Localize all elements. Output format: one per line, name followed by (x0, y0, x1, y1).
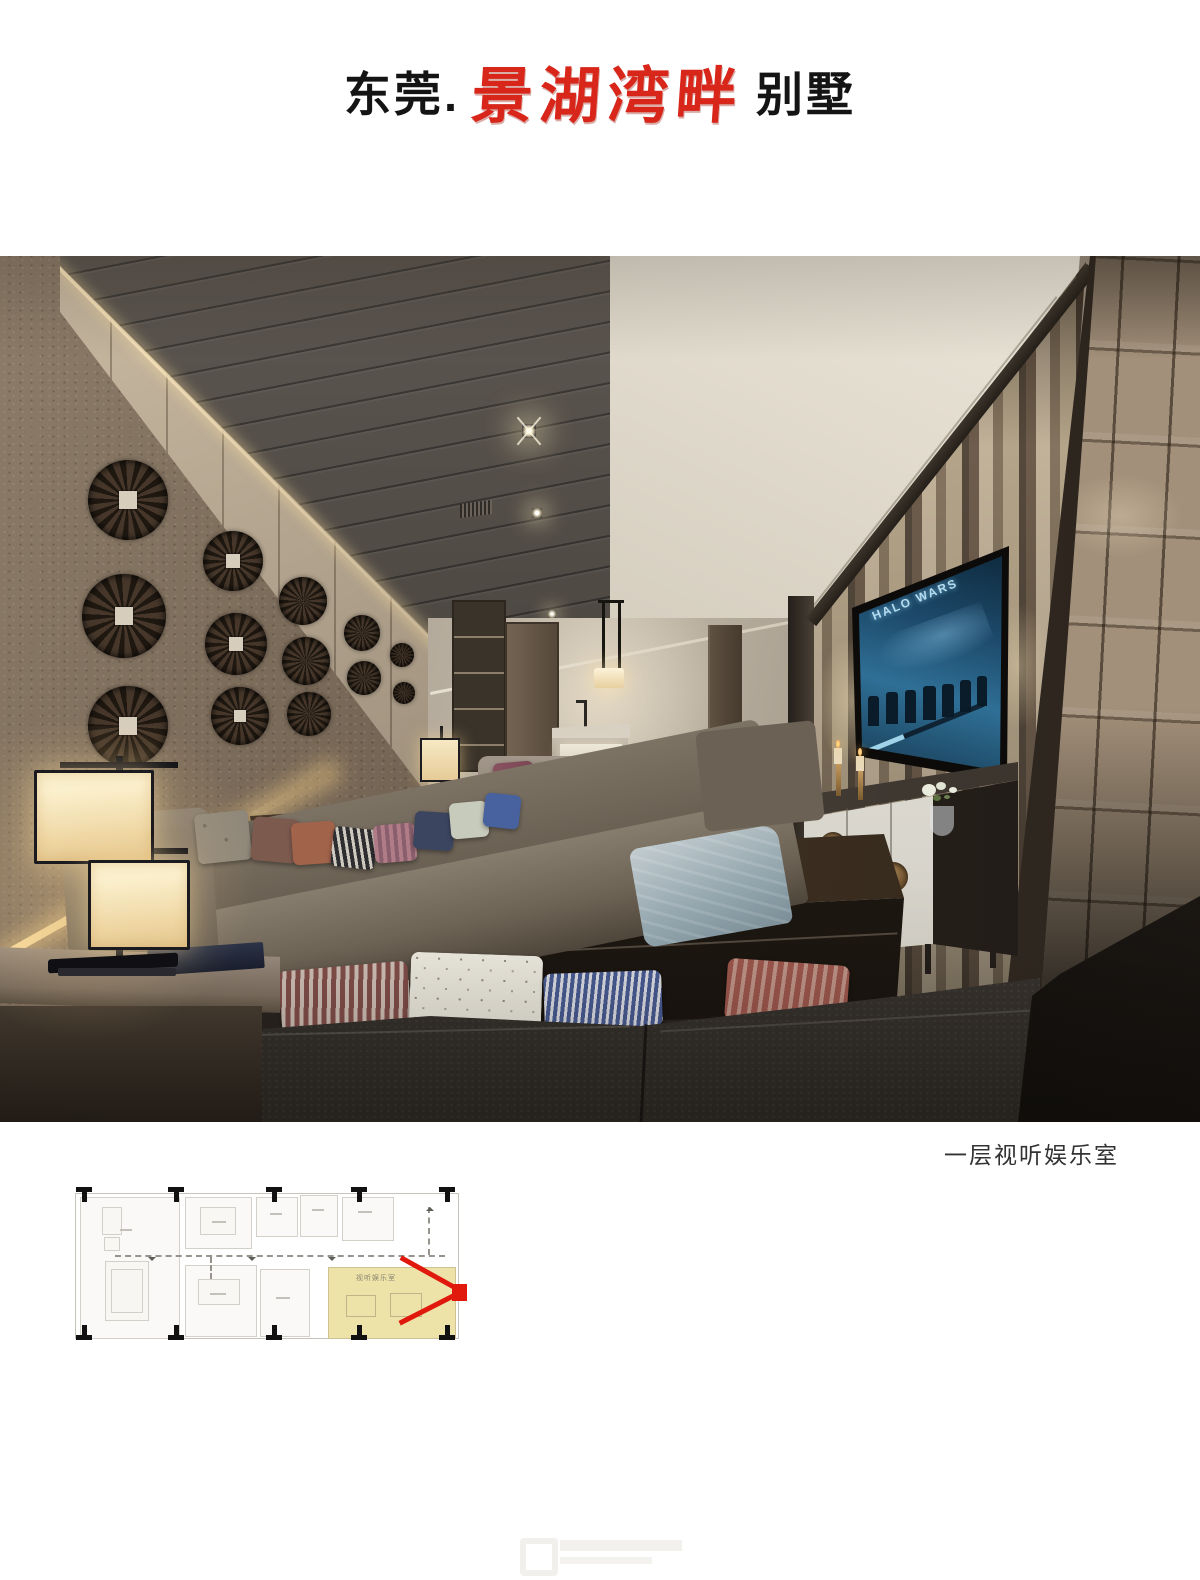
plan-text-smudge (120, 1229, 132, 1231)
wall-medallion (347, 661, 381, 695)
plan-route-arrow (248, 1257, 256, 1265)
wall-medallion (287, 692, 331, 736)
alcove-shelf-unit (452, 600, 506, 772)
plan-grid-marker (266, 1325, 282, 1340)
plan-grid-marker (76, 1187, 92, 1202)
plan-furniture (104, 1237, 120, 1251)
medallion-center (226, 554, 239, 567)
alcove-door (505, 622, 559, 764)
pendant-bar (598, 600, 624, 603)
plan-room (256, 1197, 298, 1237)
cabinet-leg (990, 938, 996, 968)
candle (856, 756, 864, 771)
plan-route-arrow (328, 1257, 336, 1265)
plan-grid-marker (76, 1325, 92, 1340)
plan-route-dashed (115, 1255, 445, 1257)
ceiling-spotlight (548, 610, 556, 618)
wall-medallion (390, 643, 414, 667)
floor-lamp-base-plate (58, 968, 176, 976)
plan-grid-marker (168, 1187, 184, 1202)
plan-text-smudge (270, 1213, 282, 1215)
plan-text-smudge (276, 1297, 290, 1299)
table-lamp-shade (420, 738, 460, 782)
plan-furniture (111, 1269, 143, 1313)
wall-medallion (203, 531, 263, 591)
flower-vase (930, 806, 954, 836)
sofa-pillow (330, 826, 378, 870)
medallion-center (115, 607, 133, 625)
wall-medallion (205, 613, 267, 675)
title-city: 东莞. (344, 68, 460, 121)
plan-route-arrow (148, 1257, 156, 1265)
plan-grid-marker (351, 1325, 367, 1340)
faucet (584, 700, 587, 728)
pendant-lamp-shade (594, 668, 624, 688)
floor-lamp-shade (34, 770, 154, 864)
plan-grid-marker (439, 1325, 455, 1340)
page-title: 东莞.景湖湾畔别墅 (0, 46, 1200, 135)
watermark-logo (520, 1538, 558, 1576)
plan-route-dashed (428, 1207, 430, 1255)
candle-flame (858, 748, 862, 756)
title-suffix: 别墅 (756, 68, 856, 121)
faucet-spout (576, 700, 587, 703)
game-soldier-silhouette (923, 686, 936, 720)
medallion-center (234, 710, 247, 723)
tv-loading-progress (864, 734, 905, 754)
watermark (520, 1536, 710, 1570)
plan-text-smudge (358, 1211, 372, 1213)
wall-medallion (344, 615, 380, 651)
cabinet-leg (925, 944, 931, 974)
candle (834, 748, 842, 764)
wall-medallion (282, 637, 330, 685)
plan-route-dashed (210, 1257, 212, 1279)
plan-furniture (102, 1207, 122, 1235)
title-brand: 景湖湾畔 (469, 46, 747, 135)
plan-room-label: 视听娱乐室 (356, 1273, 396, 1283)
plan-grid-marker (351, 1187, 367, 1202)
ceiling-spotlight (532, 508, 542, 518)
sofa-chaise (695, 720, 825, 832)
ceiling-spotlight (522, 424, 536, 438)
pendant-rod (602, 602, 605, 672)
plan-room (342, 1197, 394, 1241)
candlestick (836, 762, 841, 796)
plan-room (300, 1195, 338, 1237)
plan-text-smudge (210, 1293, 226, 1295)
camera-marker (452, 1284, 467, 1301)
game-soldier-silhouette (868, 696, 879, 726)
floor-lamp-arm (60, 762, 178, 768)
game-soldier-silhouette (905, 690, 916, 723)
sofa-pillow (482, 792, 521, 830)
page: { "title": { "prefix": "东莞.", "brand": "… (0, 0, 1200, 1580)
plan-grid-marker (168, 1325, 184, 1340)
game-soldier-silhouette (886, 692, 898, 724)
watermark-text-block (560, 1540, 682, 1551)
medallion-center (119, 491, 137, 509)
sofa-pillow (543, 970, 663, 1030)
plan-grid-marker (439, 1187, 455, 1202)
medallion-center (229, 637, 243, 651)
flower-bouquet (922, 784, 936, 796)
plan-text-smudge (312, 1209, 324, 1211)
sofa-pillow (372, 822, 417, 864)
interior-render-photo: HALO WARS (0, 256, 1200, 1122)
plan-furniture (346, 1295, 376, 1317)
wall-medallion (393, 682, 415, 704)
floor-plan: 视听娱乐室 (60, 1185, 470, 1345)
candle-flame (836, 740, 840, 748)
photo-caption: 一层视听娱乐室 (944, 1136, 1119, 1170)
floor-lamp-shade (88, 860, 190, 950)
wall-medallion (279, 577, 327, 625)
wall-medallion (82, 574, 166, 658)
plan-furniture (198, 1279, 240, 1305)
wall-medallion (88, 460, 168, 540)
pendant-rod (618, 602, 621, 672)
candlestick (858, 770, 863, 800)
plan-grid-marker (266, 1187, 282, 1202)
plan-text-smudge (212, 1221, 226, 1223)
watermark-text-block (560, 1557, 652, 1564)
plan-route-arrow (426, 1203, 434, 1211)
game-soldier-silhouette (942, 684, 954, 717)
